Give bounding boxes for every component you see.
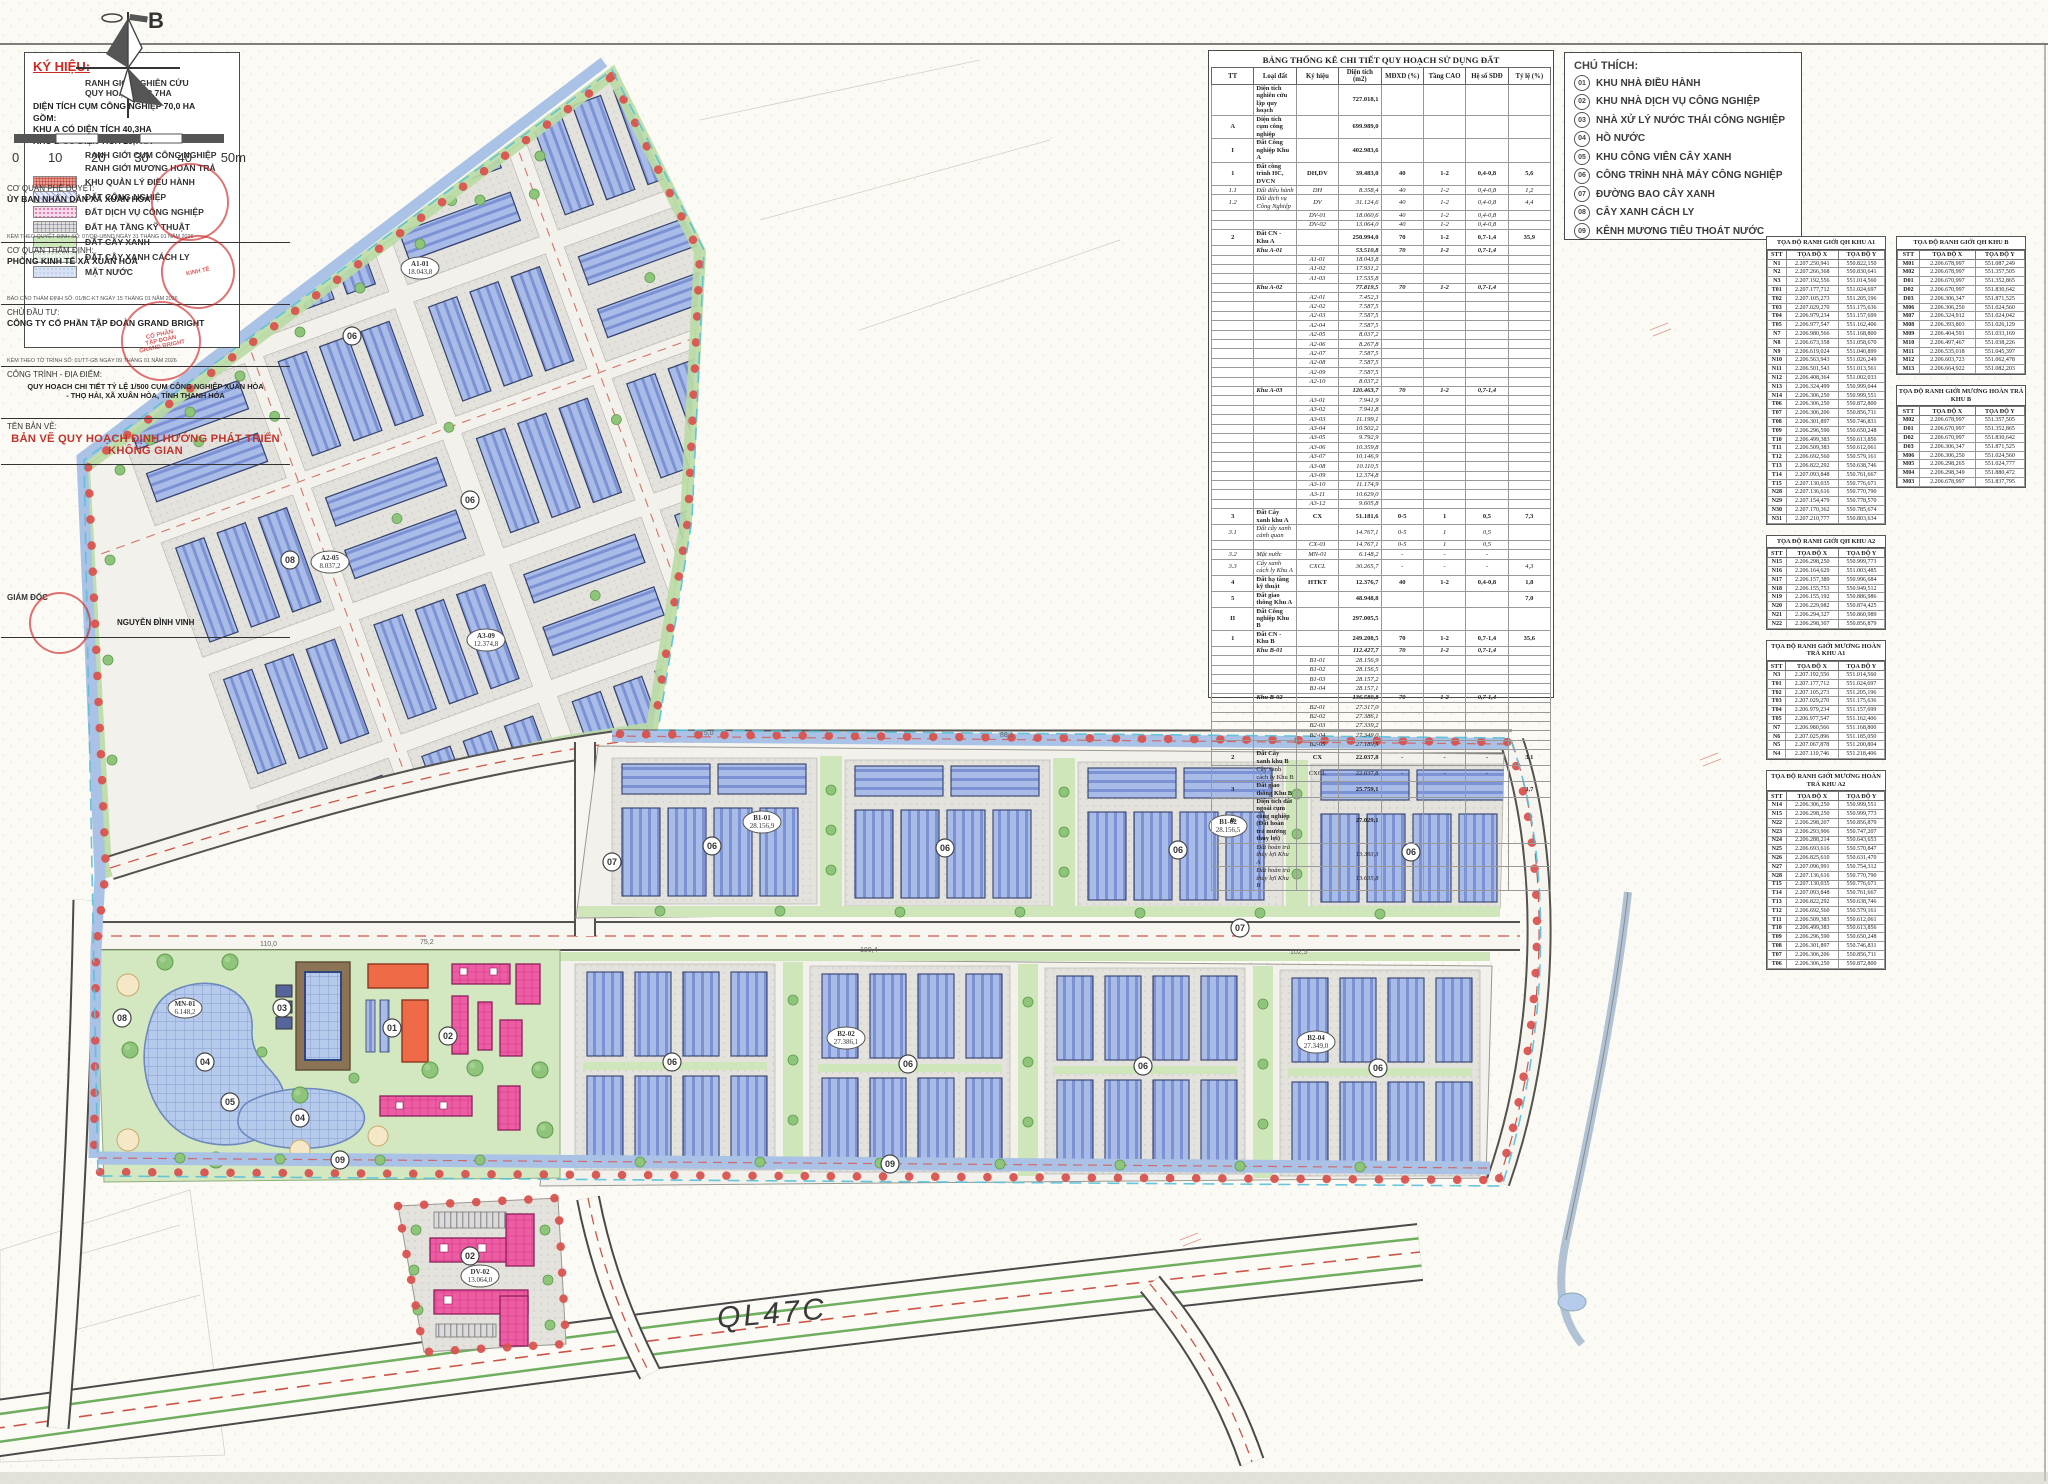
drawing-title: BẢN VẼ QUY HOẠCH ĐỊNH HƯỚNG PHÁT TRIỂN K… bbox=[7, 433, 284, 457]
table-row: 3Đất Cây xanh khu ACX51.181,60-510,57,3 bbox=[1212, 509, 1551, 525]
note-item: 01KHU NHÀ ĐIỀU HÀNH bbox=[1574, 75, 1792, 91]
table-row: A2-068.267,8 bbox=[1212, 340, 1551, 349]
land-use-table-title: BẢNG THỐNG KÊ CHI TIẾT QUY HOẠCH SỬ DỤNG… bbox=[1211, 53, 1551, 67]
table-row: N282.207.136,616550.770,790 bbox=[1768, 871, 1885, 880]
table-row: M102.206.497,467551.038,226 bbox=[1898, 338, 2025, 347]
table-row: A3-059.792,9 bbox=[1212, 433, 1551, 442]
table-row: T042.206.979,234551.157,699 bbox=[1768, 312, 1885, 321]
table-row: 1Đất CN - Khu B249.208,5701-20,7-1,435,6 bbox=[1212, 630, 1551, 646]
table-row: 3.3Cây xanh cách ly Khu ACXCL30.265,7---… bbox=[1212, 559, 1551, 575]
note-number-icon: 05 bbox=[1574, 149, 1590, 165]
svg-text:B1-01: B1-01 bbox=[753, 814, 771, 822]
table-row: N32.207.192,556551.014,560 bbox=[1768, 277, 1885, 286]
table-row: N92.206.619,024551.040,899 bbox=[1768, 347, 1885, 356]
svg-text:06: 06 bbox=[940, 843, 950, 853]
table-row: A3-129.605,8 bbox=[1212, 499, 1551, 508]
table-row: N302.207.170,362550.785,674 bbox=[1768, 506, 1885, 515]
drawing-title-section: TÊN BẢN VẼ: BẢN VẼ QUY HOẠCH ĐỊNH HƯỚNG … bbox=[1, 419, 290, 465]
notes-title: CHÚ THÍCH: bbox=[1574, 60, 1792, 72]
table-row: A1-0118.043,8 bbox=[1212, 255, 1551, 264]
table-row: M032.206.678,997551.837,795 bbox=[1898, 478, 2025, 487]
table-row: A1-0217.931,2 bbox=[1212, 264, 1551, 273]
table-row: N312.207.210,777550.803,634 bbox=[1768, 514, 1885, 523]
title-block: CƠ QUAN PHÊ DUYỆT: ỦY BAN NHÂN DÂN XÃ XU… bbox=[0, 180, 291, 664]
table-row: B1-0128.156,9 bbox=[1212, 656, 1551, 665]
table-row: Diện tích nghiên cứu lập quy hoạch727.01… bbox=[1212, 85, 1551, 116]
table-row: M072.206.324,912551.024,042 bbox=[1898, 312, 2025, 321]
table-row: T102.206.499,383550.613,856 bbox=[1768, 924, 1885, 933]
table-row: A3-0810.110,5 bbox=[1212, 462, 1551, 471]
note-item: 07ĐƯỜNG BAO CÂY XANH bbox=[1574, 186, 1792, 202]
note-number-icon: 06 bbox=[1574, 168, 1590, 184]
table-header-row: STTTỌA ĐỘ XTỌA ĐỘ Y bbox=[1768, 662, 1885, 671]
table-row: N52.207.067,878551.200,804 bbox=[1768, 741, 1885, 750]
note-number-icon: 03 bbox=[1574, 112, 1590, 128]
table-row: D022.206.670,997551.830,642 bbox=[1898, 286, 2025, 295]
table-row: 3.2Mặt nướcMN-016.148,2--- bbox=[1212, 550, 1551, 559]
approval-section: CƠ QUAN PHÊ DUYỆT: ỦY BAN NHÂN DÂN XÃ XU… bbox=[1, 181, 290, 243]
table-header-row: TTLoại đấtKý hiệuDiện tích (m2)MĐXD (%)T… bbox=[1212, 68, 1551, 85]
svg-text:88,1: 88,1 bbox=[1000, 732, 1014, 739]
table-row: N182.206.155,753550.949,512 bbox=[1768, 584, 1885, 593]
svg-text:180,4: 180,4 bbox=[860, 947, 878, 954]
table-row: A3-017.941,9 bbox=[1212, 396, 1551, 405]
note-number-icon: 07 bbox=[1574, 186, 1590, 202]
svg-text:110,0: 110,0 bbox=[260, 941, 277, 948]
table-row: A1-0317.535,8 bbox=[1212, 274, 1551, 283]
table-row: 1.2Đất dịch vụ Công NghiệpDV31.124,6401-… bbox=[1212, 195, 1551, 211]
table-row: ADiện tích cụm công nghiệp699.989,0 bbox=[1212, 115, 1551, 138]
table-row: 4Đất hạ tầng kỹ thuậtHTKT12.376,7401-20,… bbox=[1212, 575, 1551, 591]
svg-text:06: 06 bbox=[1173, 845, 1183, 855]
table-row: N162.206.164,629551.003,485 bbox=[1768, 567, 1885, 576]
table-row: 3Đất giao thông Khu B25.759,13,7 bbox=[1212, 782, 1551, 798]
land-use-table: TTLoại đấtKý hiệuDiện tích (m2)MĐXD (%)T… bbox=[1211, 67, 1551, 891]
table-row: B1-0428.157,1 bbox=[1212, 684, 1551, 693]
table-row: T142.207.093,848550.761,667 bbox=[1768, 889, 1885, 898]
table-row: A3-0912.374,8 bbox=[1212, 471, 1551, 480]
table-row: T072.206.306,206550.856,711 bbox=[1768, 409, 1885, 418]
svg-text:MN-01: MN-01 bbox=[175, 1000, 196, 1008]
table-row: N72.206.980,566551.168,800 bbox=[1768, 723, 1885, 732]
table-row: A3-0311.199,1 bbox=[1212, 415, 1551, 424]
table-row: B2-0527.189,5 bbox=[1212, 740, 1551, 749]
table-row: T132.206.822,292550.638,746 bbox=[1768, 898, 1885, 907]
table-row: M082.206.393,803551.026,129 bbox=[1898, 321, 2025, 330]
table-row: N262.206.825,610550.631,470 bbox=[1768, 854, 1885, 863]
table-row: T082.206.301,897550.746,831 bbox=[1768, 942, 1885, 951]
table-row: A3-1011.174,9 bbox=[1212, 480, 1551, 489]
svg-text:06: 06 bbox=[707, 841, 717, 851]
scale-bar bbox=[12, 132, 246, 146]
svg-text:03: 03 bbox=[277, 1003, 287, 1013]
table-row: A3-027.941,8 bbox=[1212, 405, 1551, 414]
table-header-row: STTTỌA ĐỘ XTỌA ĐỘ Y bbox=[1768, 250, 1885, 259]
table-row: D032.206.306,347551.871,525 bbox=[1898, 442, 2025, 451]
table-row: N232.206.293,906550.747,207 bbox=[1768, 827, 1885, 836]
director-section: GIÁM ĐỐC NGUYỄN ĐÌNH VINH bbox=[1, 590, 290, 638]
coord-table-khu-b: TỌA ĐỘ RANH GIỚI QH KHU B STTTỌA ĐỘ XTỌA… bbox=[1896, 236, 2026, 375]
table-row: B2-0427.349,0 bbox=[1212, 731, 1551, 740]
table-row: N142.206.306,250550.999,551 bbox=[1768, 801, 1885, 810]
coordinate-tables-column-2: TỌA ĐỘ RANH GIỚI QH KHU B STTTỌA ĐỘ XTỌA… bbox=[1896, 236, 2026, 498]
land-use-statistics-panel: BẢNG THỐNG KÊ CHI TIẾT QUY HOẠCH SỬ DỤNG… bbox=[1208, 50, 1554, 698]
note-number-icon: 01 bbox=[1574, 75, 1590, 91]
table-row: D012.206.670,997551.352,865 bbox=[1898, 277, 2025, 286]
table-row: B2-0327.339,2 bbox=[1212, 722, 1551, 731]
note-item: 05KHU CÔNG VIÊN CÂY XANH bbox=[1574, 149, 1792, 165]
table-row: T122.206.692,560550.579,161 bbox=[1768, 906, 1885, 915]
table-row: T032.207.029,270551.175,636 bbox=[1768, 697, 1885, 706]
note-number-icon: 08 bbox=[1574, 205, 1590, 221]
svg-text:08: 08 bbox=[285, 555, 295, 565]
svg-text:A1-01: A1-01 bbox=[411, 260, 429, 268]
table-row: T012.207.177,712551.024,697 bbox=[1768, 679, 1885, 688]
table-row: N252.206.693,616550.570,847 bbox=[1768, 845, 1885, 854]
coord-table-muong-b: TỌA ĐỘ RANH GIỚI MƯƠNG HOÀN TRẢ KHU B ST… bbox=[1896, 385, 2026, 488]
north-arrow-icon bbox=[68, 6, 188, 126]
svg-text:02: 02 bbox=[443, 1031, 453, 1041]
notes-panel: CHÚ THÍCH: 01KHU NHÀ ĐIỀU HÀNH 02KHU NHÀ… bbox=[1564, 52, 1802, 240]
table-row: N242.206.288,214550.643,653 bbox=[1768, 836, 1885, 845]
table-row: 1Đất công trình HC, DVCNDH,DV39.483,0401… bbox=[1212, 162, 1551, 185]
svg-text:75,0: 75,0 bbox=[700, 730, 714, 737]
table-row: A2-027.587,5 bbox=[1212, 302, 1551, 311]
north-label: B bbox=[148, 8, 164, 34]
table-row: BDiện tích đất ngoài cụm công nghiệp (Đấ… bbox=[1212, 798, 1551, 844]
table-row: N82.206.673,358551.058,670 bbox=[1768, 338, 1885, 347]
table-row: A2-087.587,5 bbox=[1212, 358, 1551, 367]
table-row: T012.207.177,712551.024,697 bbox=[1768, 286, 1885, 295]
table-row: T022.207.105,273551.205,196 bbox=[1768, 294, 1885, 303]
table-row: M132.206.664,922551.082,203 bbox=[1898, 365, 2025, 374]
svg-text:06: 06 bbox=[1138, 1061, 1148, 1071]
planning-drawing-sheet: { "legend": { "title": "KÝ HIỆU:", "rese… bbox=[0, 0, 2048, 1484]
table-row: N112.206.501,543551.013,561 bbox=[1768, 365, 1885, 374]
table-row: T152.207.130,035550.776,671 bbox=[1768, 880, 1885, 889]
note-item: 03NHÀ XỬ LÝ NƯỚC THẢI CÔNG NGHIỆP bbox=[1574, 112, 1792, 128]
table-row: N22.207.266,368550.830,641 bbox=[1768, 268, 1885, 277]
svg-text:DV-02: DV-02 bbox=[471, 1268, 490, 1276]
note-number-icon: 09 bbox=[1574, 223, 1590, 239]
table-row: A2-108.037,2 bbox=[1212, 377, 1551, 386]
table-row: N222.206.298,207550.856,879 bbox=[1768, 818, 1885, 827]
svg-text:06: 06 bbox=[1373, 1063, 1383, 1073]
table-header-row: STTTỌA ĐỘ XTỌA ĐỘ Y bbox=[1768, 792, 1885, 801]
table-row: DV-0213.064,0401-20,4-0,8 bbox=[1212, 220, 1551, 229]
svg-text:102,5: 102,5 bbox=[1290, 949, 1308, 956]
investor-section: CHỦ ĐẦU TƯ: CÔNG TY CỔ PHẦN TẬP ĐOÀN GRA… bbox=[1, 305, 290, 367]
svg-text:01: 01 bbox=[387, 1023, 397, 1033]
table-row: M092.206.404,591551.033,169 bbox=[1898, 330, 2025, 339]
table-row: B2-0227.386,1 bbox=[1212, 712, 1551, 721]
table-row: N142.206.306,250550.999,551 bbox=[1768, 391, 1885, 400]
table-row: Khu A-0277.819,5701-20,7-1,4 bbox=[1212, 283, 1551, 292]
table-row: T062.206.306,250550.872,800 bbox=[1768, 400, 1885, 409]
table-row: B1-0228.156,5 bbox=[1212, 665, 1551, 674]
table-row: 5Đất giao thông Khu A48.948,87,0 bbox=[1212, 591, 1551, 607]
table-header-row: STTTỌA ĐỘ XTỌA ĐỘ Y bbox=[1898, 407, 2025, 416]
scale-tick-labels: 010 2030 4050m bbox=[12, 150, 246, 165]
svg-text:09: 09 bbox=[335, 1155, 345, 1165]
table-row: T112.206.509,383550.612,061 bbox=[1768, 915, 1885, 924]
table-row: A2-077.587,5 bbox=[1212, 349, 1551, 358]
table-row: M042.206.298,349551.880,472 bbox=[1898, 469, 2025, 478]
table-row: M062.206.306,250551.024,560 bbox=[1898, 451, 2025, 460]
table-row: B1-0328.157,2 bbox=[1212, 675, 1551, 684]
table-row: N72.206.980,566551.168,800 bbox=[1768, 330, 1885, 339]
note-item: 09KÊNH MƯƠNG TIÊU THOÁT NƯỚC bbox=[1574, 223, 1792, 239]
note-item: 06CÔNG TRÌNH NHÀ MÁY CÔNG NGHIỆP bbox=[1574, 168, 1792, 184]
project-section: CÔNG TRÌNH - ĐỊA ĐIỂM: QUY HOẠCH CHI TIẾ… bbox=[1, 367, 290, 419]
table-row: A3-0610.359,8 bbox=[1212, 443, 1551, 452]
svg-text:A3-09: A3-09 bbox=[477, 632, 495, 640]
table-row: N172.206.157,389550.996,684 bbox=[1768, 575, 1885, 584]
table-row: M022.206.678,997551.357,505 bbox=[1898, 268, 2025, 277]
note-item: 02KHU NHÀ DỊCH VỤ CÔNG NGHIỆP bbox=[1574, 94, 1792, 110]
note-number-icon: 04 bbox=[1574, 131, 1590, 147]
table-row: A3-0410.502,2 bbox=[1212, 424, 1551, 433]
table-row: N272.207.096,991550.754,312 bbox=[1768, 862, 1885, 871]
svg-text:04: 04 bbox=[200, 1057, 210, 1067]
table-row: T092.206.296,590550.650,248 bbox=[1768, 426, 1885, 435]
table-row: N222.206.298,307550.856,879 bbox=[1768, 619, 1885, 628]
svg-text:18.043,8: 18.043,8 bbox=[408, 268, 433, 276]
table-row: Đất hoàn trả thủy lợi Khu A13.393,3 bbox=[1212, 843, 1551, 866]
table-row: N152.206.298,250550.999,773 bbox=[1768, 810, 1885, 819]
table-row: T072.206.306,206550.856,711 bbox=[1768, 950, 1885, 959]
table-row: M022.206.678,997551.357,505 bbox=[1898, 416, 2025, 425]
table-row: N132.206.324,499550.999,044 bbox=[1768, 382, 1885, 391]
table-row: N42.207.110,746551.218,406 bbox=[1768, 750, 1885, 759]
svg-text:09: 09 bbox=[885, 1159, 895, 1169]
table-row: T132.206.822,292550.638,746 bbox=[1768, 462, 1885, 471]
table-row: T152.207.130,035550.776,671 bbox=[1768, 479, 1885, 488]
table-row: N192.206.155,192550.886,986 bbox=[1768, 593, 1885, 602]
table-row: M112.206.535,018551.045,397 bbox=[1898, 347, 2025, 356]
table-row: M012.206.678,997551.087,249 bbox=[1898, 259, 2025, 268]
svg-text:A2-05: A2-05 bbox=[321, 554, 339, 562]
svg-text:6.148,2: 6.148,2 bbox=[175, 1008, 197, 1016]
table-row: DV-0118.060,6401-20,4-0,8 bbox=[1212, 211, 1551, 220]
svg-text:06: 06 bbox=[667, 1057, 677, 1067]
table-row: N32.207.192,556551.014,560 bbox=[1768, 671, 1885, 680]
coord-table-muong-a1: TỌA ĐỘ RANH GIỚI MƯƠNG HOÀN TRẢ KHU A1 S… bbox=[1766, 640, 1886, 760]
table-row: D032.206.306,347551.871,525 bbox=[1898, 294, 2025, 303]
table-row: N292.207.154,479550.778,570 bbox=[1768, 497, 1885, 506]
table-row: N152.206.298,250550.999,773 bbox=[1768, 558, 1885, 567]
table-row: A2-058.037,2 bbox=[1212, 330, 1551, 339]
zone-b-strip-2 bbox=[540, 952, 1492, 1186]
table-row: N122.206.408,364551.002,033 bbox=[1768, 374, 1885, 383]
svg-text:06: 06 bbox=[903, 1059, 913, 1069]
table-row: A3-1110.629,0 bbox=[1212, 490, 1551, 499]
svg-text:B2-04: B2-04 bbox=[1307, 1034, 1325, 1042]
table-row: T052.206.977,547551.162,406 bbox=[1768, 715, 1885, 724]
table-row: IIĐất Công nghiệp Khu B297.005,5 bbox=[1212, 607, 1551, 630]
table-row: Khu A-03120.463,7701-20,7-1,4 bbox=[1212, 387, 1551, 396]
table-row: T032.207.029,270551.175,636 bbox=[1768, 303, 1885, 312]
svg-text:B2-02: B2-02 bbox=[837, 1030, 855, 1038]
svg-text:8.037,2: 8.037,2 bbox=[320, 562, 342, 570]
coord-table-khu-a2: TỌA ĐỘ RANH GIỚI QH KHU A2 STTTỌA ĐỘ XTỌ… bbox=[1766, 535, 1886, 630]
table-row: Đất hoàn trả thủy lợi Khu B13.635,8 bbox=[1212, 867, 1551, 890]
table-row: T092.206.296,590550.650,248 bbox=[1768, 933, 1885, 942]
svg-text:08: 08 bbox=[117, 1013, 127, 1023]
svg-text:13.064,0: 13.064,0 bbox=[468, 1276, 493, 1284]
table-row: D012.206.670,997551.352,865 bbox=[1898, 425, 2025, 434]
table-row: T082.206.301,897550.746,831 bbox=[1768, 418, 1885, 427]
review-section: CƠ QUAN THẨM ĐỊNH: PHÒNG KINH TẾ XÃ XUÂN… bbox=[1, 243, 290, 305]
svg-text:06: 06 bbox=[465, 495, 475, 505]
table-row: N282.207.136,616550.770,790 bbox=[1768, 488, 1885, 497]
svg-text:07: 07 bbox=[607, 857, 617, 867]
coordinate-tables-column-1: TỌA ĐỘ RANH GIỚI QH KHU A1 STTTỌA ĐỘ XTỌ… bbox=[1766, 236, 1886, 980]
table-row: Khu B-01112.427,7701-20,7-1,4 bbox=[1212, 646, 1551, 655]
table-row: A2-047.587,5 bbox=[1212, 321, 1551, 330]
svg-text:06: 06 bbox=[347, 331, 357, 341]
table-row: A2-037.587,5 bbox=[1212, 311, 1551, 320]
svg-text:12.374,8: 12.374,8 bbox=[474, 640, 499, 648]
coord-table-muong-a2: TỌA ĐỘ RANH GIỚI MƯƠNG HOÀN TRẢ KHU A2 S… bbox=[1766, 770, 1886, 970]
table-row: N102.206.563,943551.026,249 bbox=[1768, 356, 1885, 365]
table-row: M122.206.603,723551.062,478 bbox=[1898, 356, 2025, 365]
table-row: A2-017.452,3 bbox=[1212, 293, 1551, 302]
note-number-icon: 02 bbox=[1574, 94, 1590, 110]
svg-text:05: 05 bbox=[225, 1097, 235, 1107]
svg-text:07: 07 bbox=[1235, 923, 1245, 933]
table-row: 2Đất Cây xanh khu BCX22.037,8---3,1 bbox=[1212, 750, 1551, 766]
table-row: 1.1Đất điều hànhDH8.358,4401-20,4-0,81,2 bbox=[1212, 186, 1551, 195]
table-row: N62.207.025,896551.185,050 bbox=[1768, 732, 1885, 741]
table-row: M062.206.306,250551.024,560 bbox=[1898, 303, 2025, 312]
table-row: Khu A-0153.510,8701-20,7-1,4 bbox=[1212, 246, 1551, 255]
table-row: T052.206.977,547551.162,406 bbox=[1768, 321, 1885, 330]
table-row: CX-0114.767,10-510,5 bbox=[1212, 540, 1551, 549]
table-row: N212.206.294,327550.860,989 bbox=[1768, 611, 1885, 620]
coord-table-khu-a1: TỌA ĐỘ RANH GIỚI QH KHU A1 STTTỌA ĐỘ XTỌ… bbox=[1766, 236, 1886, 525]
table-row: N202.206.229,082550.874,425 bbox=[1768, 602, 1885, 611]
table-row: M052.206.298,265551.024,777 bbox=[1898, 460, 2025, 469]
svg-text:28.156,9: 28.156,9 bbox=[750, 822, 775, 830]
table-row: T122.206.692,560550.579,161 bbox=[1768, 453, 1885, 462]
note-item: 04HỒ NƯỚC bbox=[1574, 131, 1792, 147]
table-row: 3.1Đất cây xanh cảnh quan14.767,10-510,5 bbox=[1212, 525, 1551, 541]
table-row: T062.206.306,250550.872,800 bbox=[1768, 959, 1885, 968]
svg-text:04: 04 bbox=[295, 1113, 305, 1123]
svg-text:75,2: 75,2 bbox=[420, 939, 434, 946]
table-row: A2-097.587,5 bbox=[1212, 368, 1551, 377]
svg-text:02: 02 bbox=[465, 1251, 475, 1261]
table-header-row: STTTỌA ĐỘ XTỌA ĐỘ Y bbox=[1768, 549, 1885, 558]
note-item: 08CÂY XANH CÁCH LY bbox=[1574, 205, 1792, 221]
table-row: T022.207.105,273551.205,196 bbox=[1768, 688, 1885, 697]
table-row: T042.206.979,234551.157,699 bbox=[1768, 706, 1885, 715]
table-row: B2-0127.317,0 bbox=[1212, 703, 1551, 712]
table-row: D022.206.670,997551.830,642 bbox=[1898, 434, 2025, 443]
table-header-row: STTTỌA ĐỘ XTỌA ĐỘ Y bbox=[1898, 250, 2025, 259]
table-row: Cây xanh cách ly Khu BCXCL22.037,8--- bbox=[1212, 766, 1551, 782]
table-row: T142.207.093,848550.761,667 bbox=[1768, 470, 1885, 479]
svg-text:27.349,0: 27.349,0 bbox=[1304, 1042, 1329, 1050]
table-row: A3-0710.146,9 bbox=[1212, 452, 1551, 461]
table-row: N12.207.250,941550.822,150 bbox=[1768, 259, 1885, 268]
svg-text:27.386,1: 27.386,1 bbox=[834, 1038, 859, 1046]
park-and-admin-area bbox=[96, 950, 560, 1182]
table-row: T102.206.499,383550.613,856 bbox=[1768, 435, 1885, 444]
table-row: Khu B-02136.580,8701-20,7-1,4 bbox=[1212, 693, 1551, 702]
table-row: IĐất Công nghiệp Khu A402.983,6 bbox=[1212, 139, 1551, 162]
table-row: 2Đất CN - Khu A250.994,0701-20,7-1,435,9 bbox=[1212, 230, 1551, 246]
table-row: T112.206.509,383550.612,061 bbox=[1768, 444, 1885, 453]
